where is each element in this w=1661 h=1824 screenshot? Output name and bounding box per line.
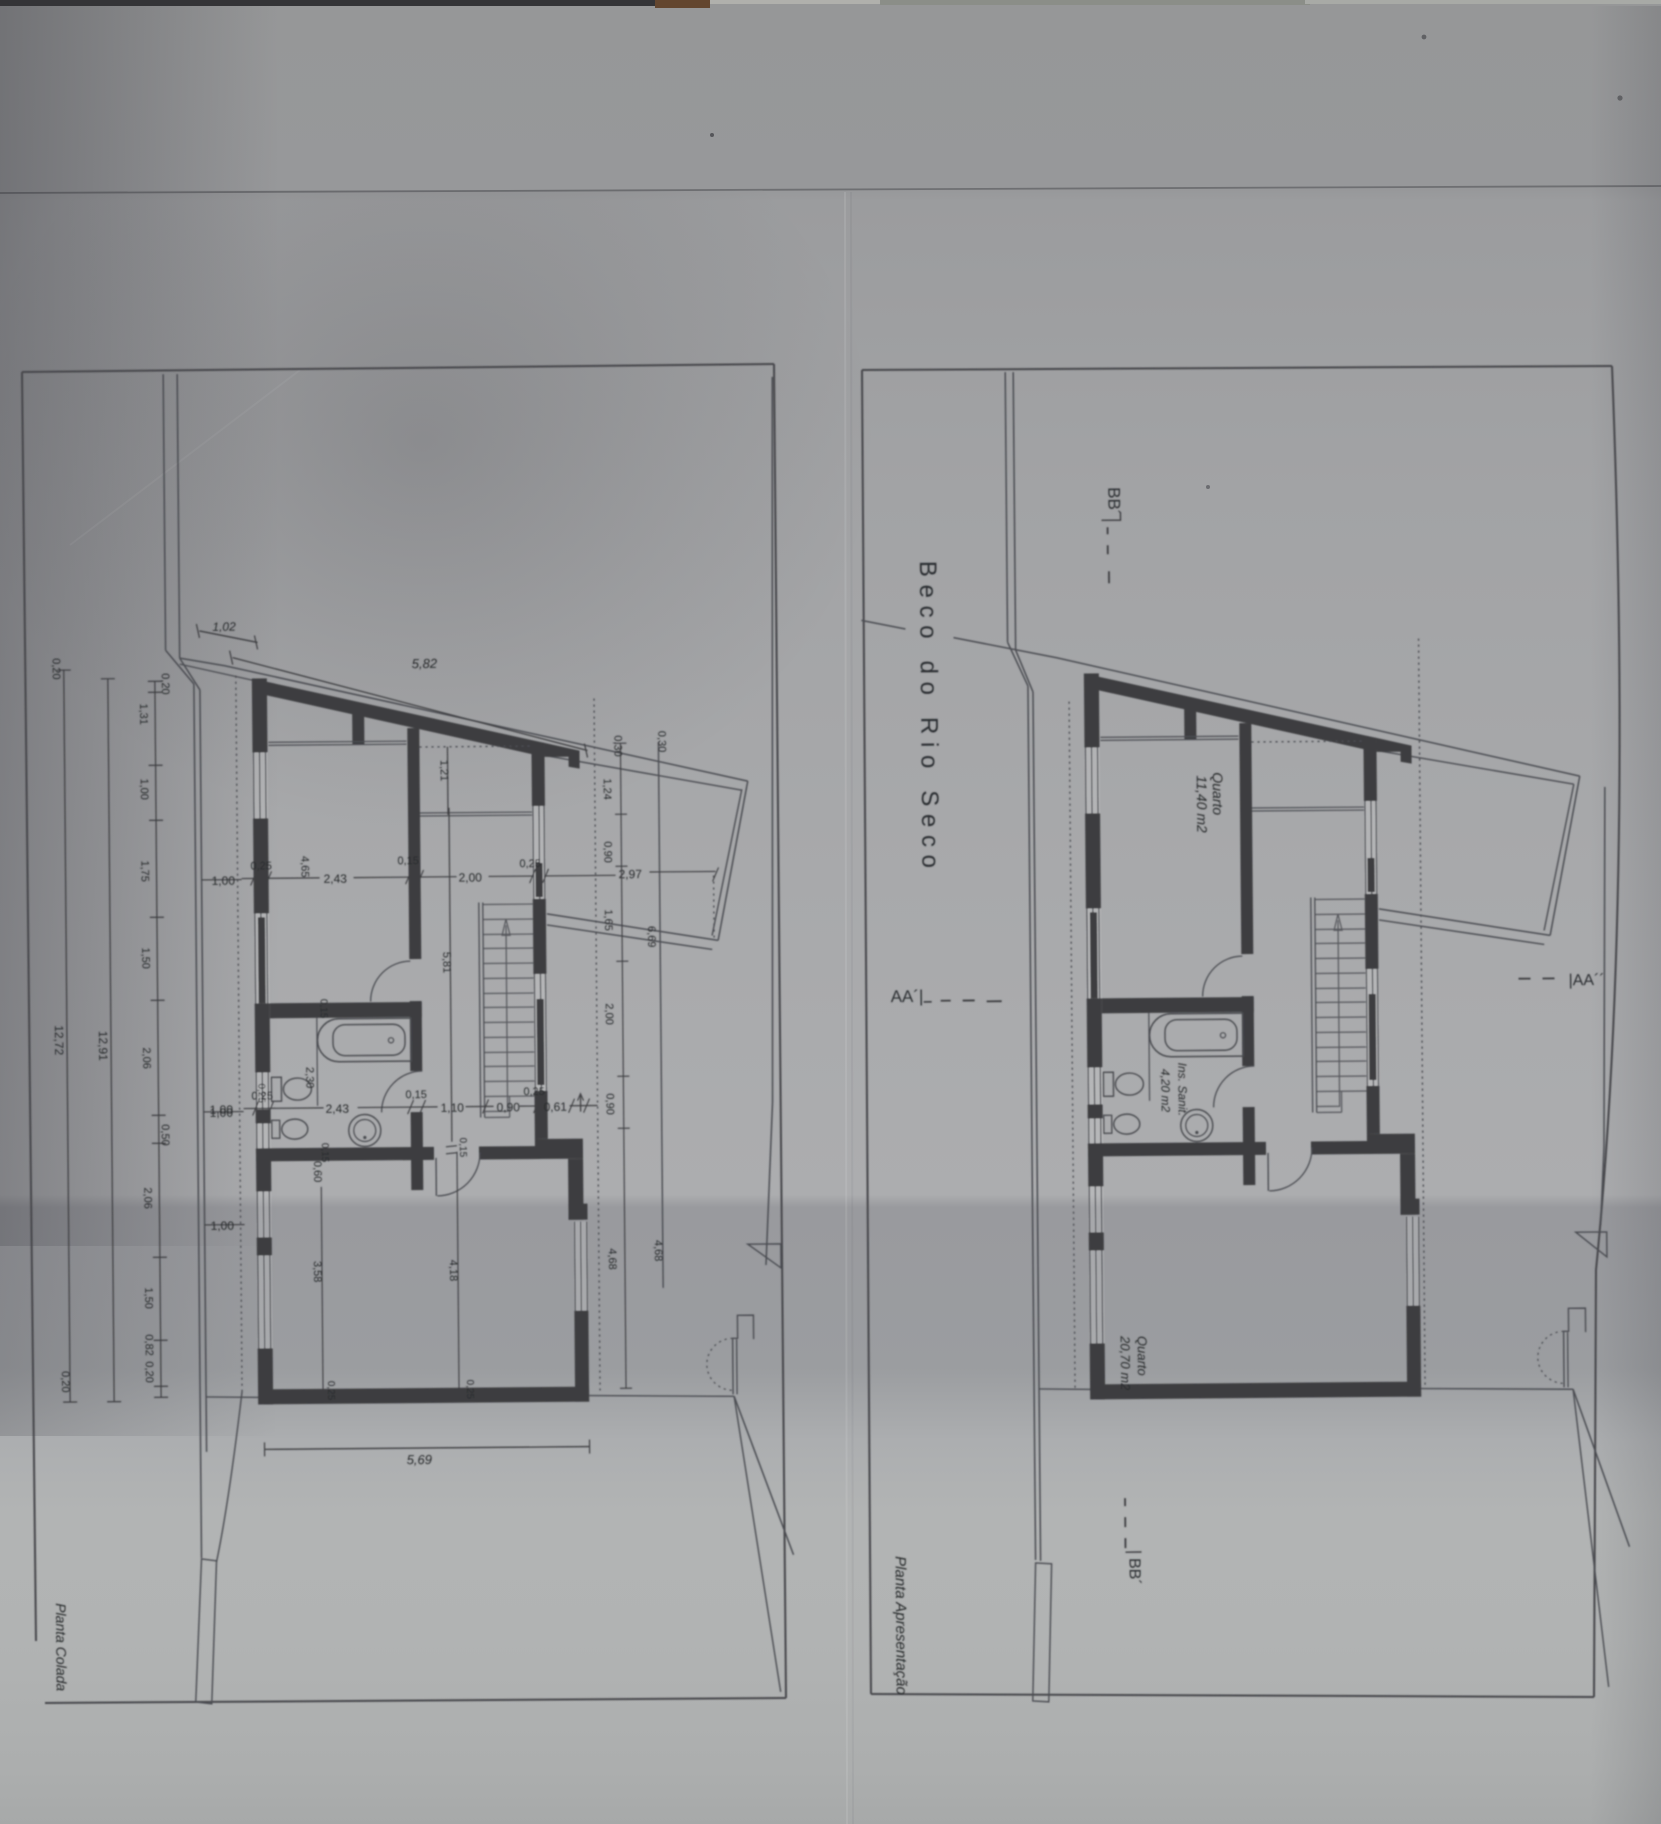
svg-text:11,40 m2: 11,40 m2 [1194, 775, 1211, 833]
svg-text:Ins. Sanit.: Ins. Sanit. [1175, 1063, 1189, 1116]
svg-text:0,15: 0,15 [457, 1138, 468, 1158]
svg-text:2,30: 2,30 [303, 1067, 315, 1089]
svg-text:20,70 m2: 20,70 m2 [1118, 1335, 1133, 1391]
svg-text:0,15: 0,15 [318, 999, 329, 1019]
svg-text:1,31: 1,31 [137, 703, 149, 725]
svg-text:0,25: 0,25 [255, 1083, 266, 1103]
svg-text:0,25: 0,25 [325, 1381, 336, 1401]
svg-text:0,15: 0,15 [319, 1143, 330, 1163]
svg-text:0,25: 0,25 [523, 1086, 545, 1098]
svg-text:1,21: 1,21 [438, 760, 450, 782]
svg-text:3,58: 3,58 [311, 1261, 323, 1283]
svg-text:1,00: 1,00 [138, 778, 150, 800]
svg-text:0,25: 0,25 [464, 1380, 475, 1400]
svg-text:1,10: 1,10 [441, 1101, 465, 1115]
svg-text:Quarto: Quarto [1135, 1336, 1150, 1376]
svg-text:5,81: 5,81 [440, 952, 452, 974]
svg-text:0,20: 0,20 [59, 1371, 71, 1393]
svg-text:0,20: 0,20 [50, 658, 62, 680]
svg-text:1,24: 1,24 [601, 778, 613, 800]
svg-text:0,20: 0,20 [159, 673, 171, 695]
svg-text:B e c o d o R i o S e c: B e c o d o R i o S e c o [914, 561, 944, 869]
svg-text:1,50: 1,50 [139, 947, 151, 969]
svg-text:4,68: 4,68 [652, 1240, 664, 1262]
svg-text:2,06: 2,06 [140, 1047, 152, 1069]
svg-text:0,20: 0,20 [143, 1361, 155, 1383]
svg-text:1,65: 1,65 [602, 909, 614, 931]
svg-text:2,43: 2,43 [326, 1102, 350, 1116]
svg-text:4,20 m2: 4,20 m2 [1158, 1069, 1172, 1113]
svg-text:0,25: 0,25 [519, 858, 541, 870]
svg-text:4,18: 4,18 [447, 1260, 459, 1282]
svg-text:0,90: 0,90 [601, 841, 613, 863]
svg-text:5,69: 5,69 [407, 1452, 432, 1467]
svg-text:0,60: 0,60 [311, 1161, 323, 1183]
svg-text:6,69: 6,69 [645, 926, 657, 948]
svg-text:Quarto: Quarto [1210, 772, 1226, 815]
svg-text:4,65: 4,65 [298, 856, 310, 878]
svg-text:2,43: 2,43 [324, 872, 348, 886]
svg-text:0,25: 0,25 [250, 860, 272, 872]
svg-text:2,00: 2,00 [603, 1003, 615, 1025]
svg-text:BB´: BB´ [1104, 487, 1123, 516]
svg-text:0,90: 0,90 [497, 1100, 521, 1114]
svg-text:0,61: 0,61 [544, 1100, 568, 1114]
svg-text:4,68: 4,68 [606, 1248, 618, 1270]
svg-text:Planta Apresentação: Planta Apresentação [892, 1556, 910, 1695]
svg-text:0,90: 0,90 [603, 1093, 615, 1115]
svg-text:1,02: 1,02 [212, 620, 236, 634]
svg-text:AA´|: AA´| [891, 987, 924, 1006]
svg-text:2,06: 2,06 [141, 1187, 153, 1209]
svg-text:BB´: BB´ [1126, 1558, 1143, 1585]
svg-text:12,91: 12,91 [96, 1031, 110, 1061]
svg-text:0,50: 0,50 [159, 1124, 171, 1146]
svg-text:0,15: 0,15 [397, 855, 419, 867]
svg-text:12,72: 12,72 [52, 1025, 66, 1055]
svg-text:Planta Colada: Planta Colada [53, 1603, 70, 1691]
svg-text:1,75: 1,75 [138, 860, 150, 882]
svg-text:2,00: 2,00 [459, 870, 483, 884]
svg-text:5,82: 5,82 [412, 656, 438, 671]
svg-text:0,82: 0,82 [143, 1334, 155, 1356]
svg-text:0,30: 0,30 [611, 735, 623, 757]
svg-text:1,00: 1,00 [210, 1103, 234, 1117]
svg-text:|AA´´: |AA´´ [1568, 972, 1604, 989]
svg-text:1,00: 1,00 [212, 874, 236, 888]
svg-text:1,50: 1,50 [142, 1287, 154, 1309]
svg-text:1,00: 1,00 [211, 1219, 235, 1233]
svg-text:0,15: 0,15 [405, 1089, 427, 1101]
svg-text:0,30: 0,30 [655, 731, 667, 753]
